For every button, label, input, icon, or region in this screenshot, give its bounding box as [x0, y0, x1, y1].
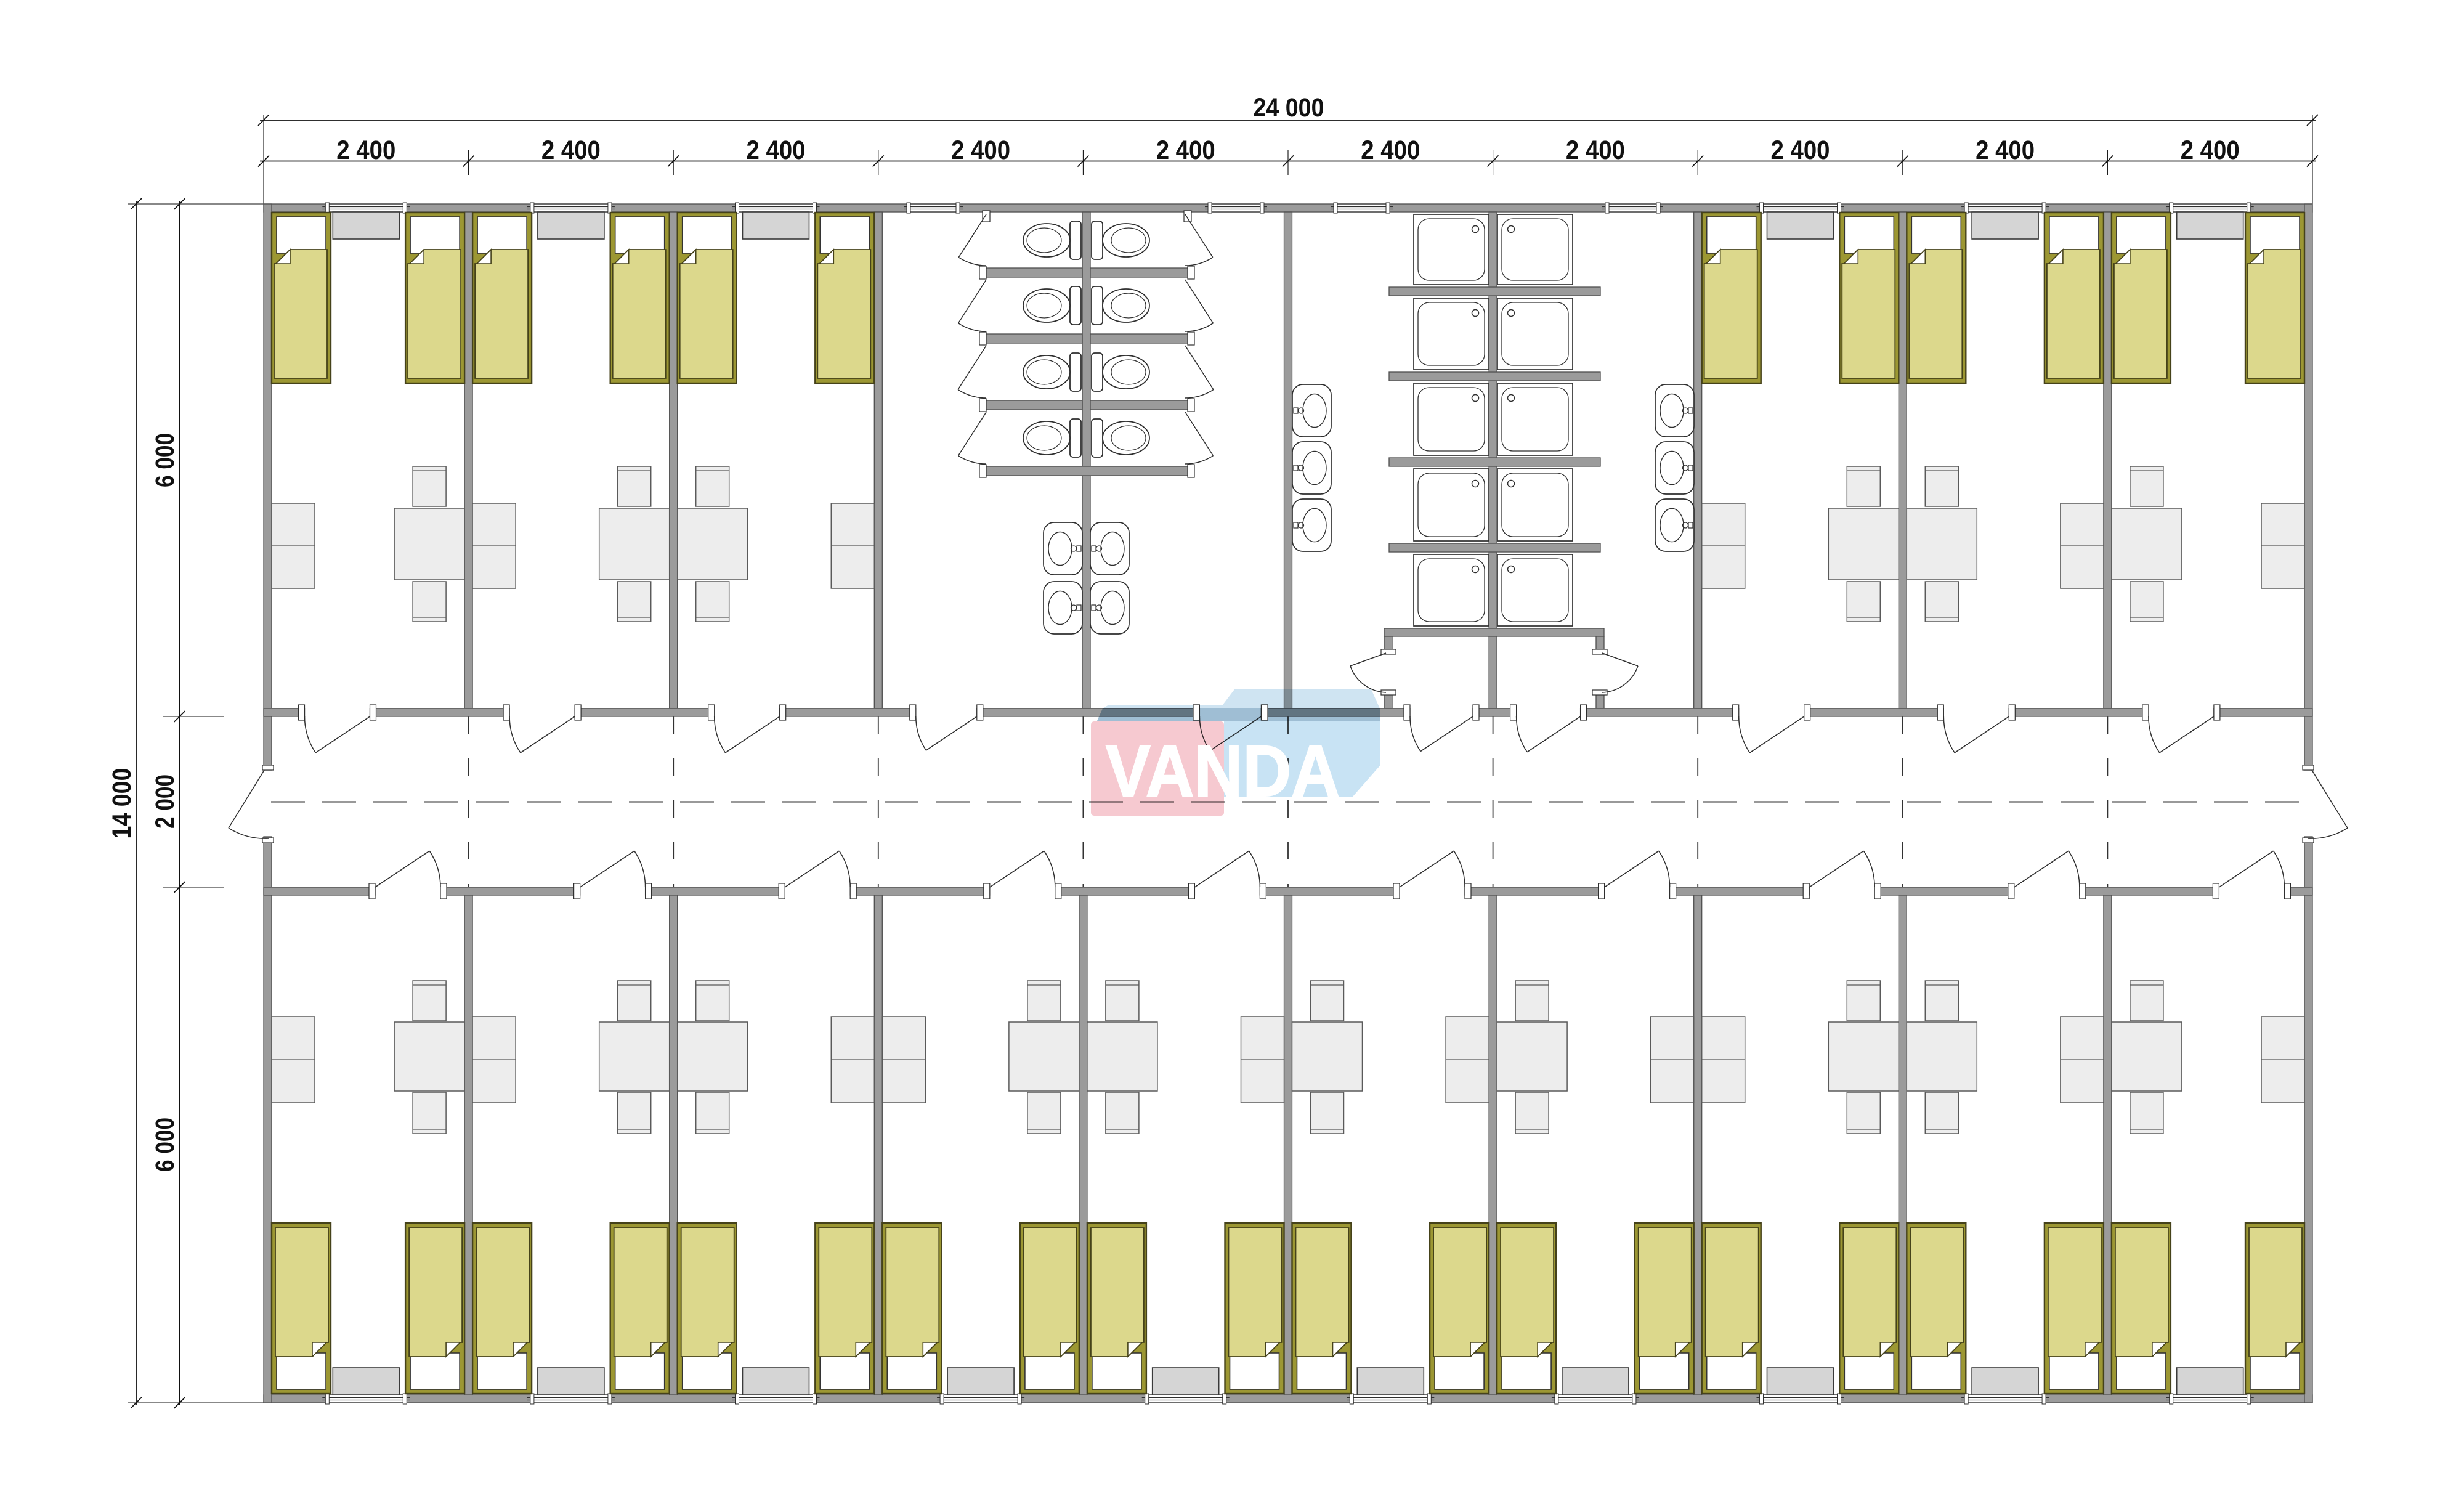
svg-text:2 400: 2 400: [541, 136, 601, 165]
svg-text:2 400: 2 400: [1771, 136, 1830, 165]
svg-text:2 000: 2 000: [150, 774, 180, 829]
svg-text:24 000: 24 000: [1254, 93, 1324, 123]
svg-text:2 400: 2 400: [1976, 136, 2035, 165]
svg-text:2 400: 2 400: [2181, 136, 2240, 165]
svg-text:2 400: 2 400: [951, 136, 1010, 165]
svg-text:6 000: 6 000: [150, 1118, 180, 1172]
svg-text:6 000: 6 000: [150, 433, 180, 487]
svg-text:2 400: 2 400: [1156, 136, 1215, 165]
svg-text:VANDA: VANDA: [1106, 731, 1340, 812]
svg-text:14 000: 14 000: [107, 768, 137, 839]
svg-text:2 400: 2 400: [1361, 136, 1420, 165]
svg-text:2 400: 2 400: [336, 136, 395, 165]
svg-text:2 400: 2 400: [1566, 136, 1625, 165]
svg-text:2 400: 2 400: [747, 136, 806, 165]
